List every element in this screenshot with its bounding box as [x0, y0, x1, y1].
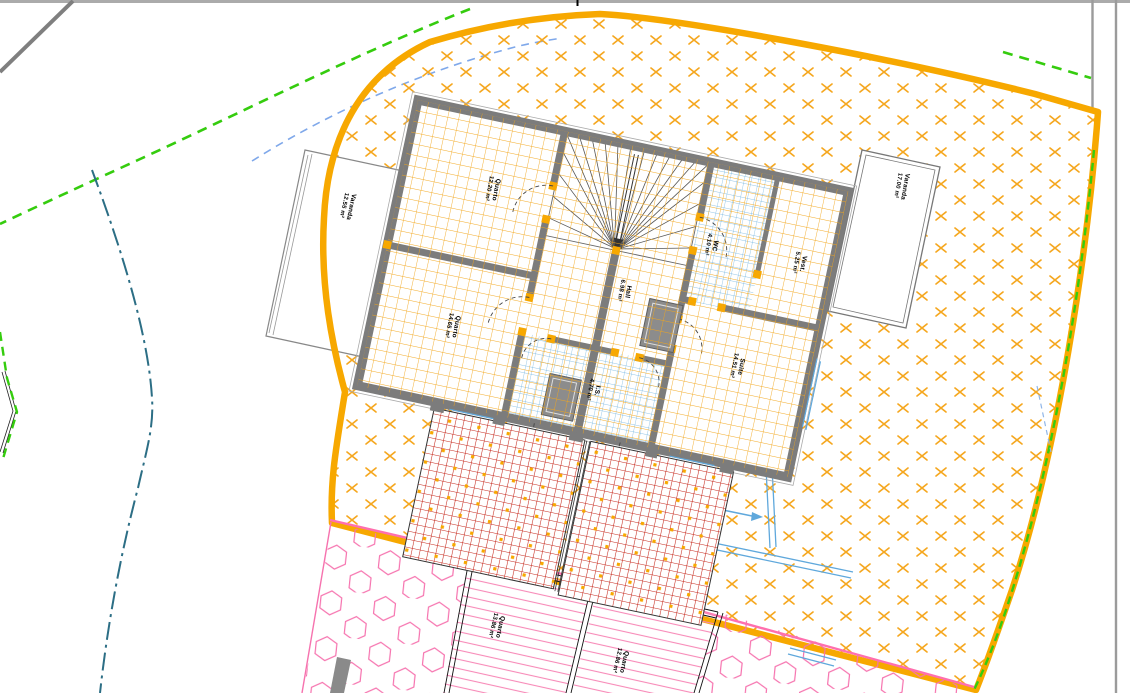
plan-drawing — [0, 0, 1130, 693]
floor-plan-canvas[interactable]: Varanda 12.55 m² Quarto 12.20 m² Quarto … — [0, 0, 1130, 693]
